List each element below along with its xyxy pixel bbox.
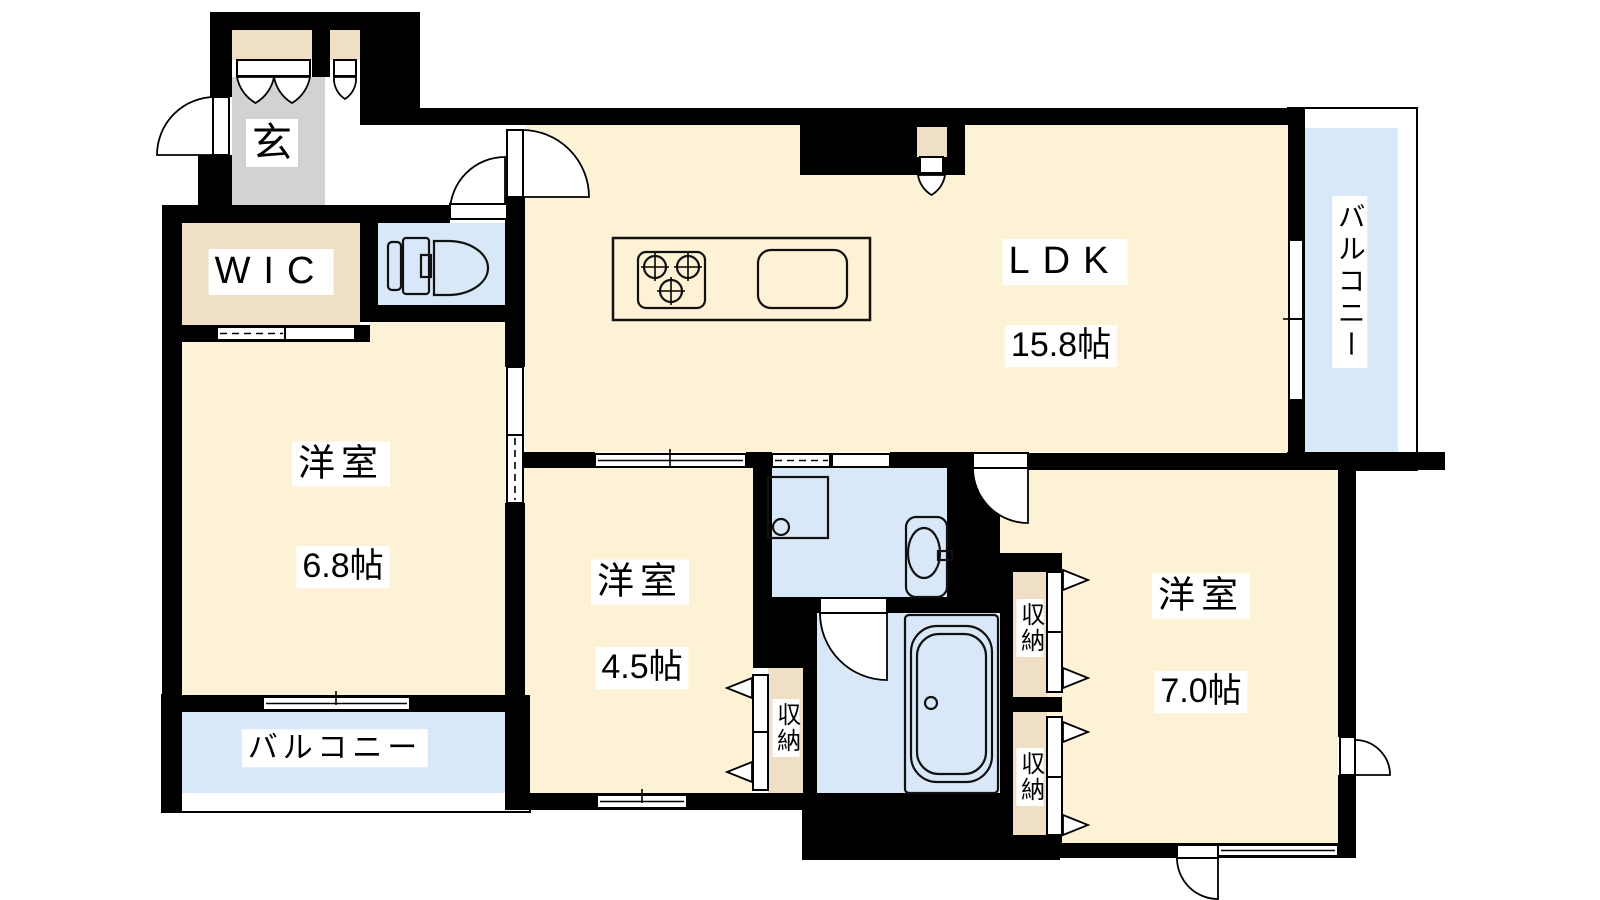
bedroom-right-label: 洋室 bbox=[1152, 574, 1250, 619]
floorplan-page: 玄 WIC LDK 15.8帖 洋室 6.8帖 洋室 4.5帖 洋室 7.0帖 … bbox=[0, 0, 1600, 900]
balcony-right-label: バルコニー bbox=[1332, 196, 1367, 368]
toilet-floor bbox=[378, 223, 505, 305]
balcony-bottom-label: バルコニー bbox=[242, 729, 428, 767]
bedroom-left-floor-notch bbox=[370, 322, 505, 344]
bedroom-left-sliding-door bbox=[507, 367, 523, 503]
bedroom-right-window bbox=[1218, 845, 1338, 856]
kitchen-counter-icon bbox=[613, 238, 870, 320]
bedroom-middle-size-label: 4.5帖 bbox=[595, 647, 688, 689]
bedroom-right-size-label: 7.0帖 bbox=[1154, 671, 1247, 713]
storage-right-lower-label: 収納 bbox=[1016, 748, 1043, 806]
bedroom-right-side-door bbox=[1340, 737, 1390, 775]
washroom-sliding-door bbox=[772, 454, 890, 467]
bedroom-left-floor bbox=[182, 342, 505, 695]
shoe-closet-2-floor bbox=[330, 30, 360, 60]
wic-label: WIC bbox=[209, 249, 334, 295]
floorplan-drawing bbox=[0, 0, 1600, 900]
bedroom-left-size-label: 6.8帖 bbox=[296, 546, 389, 588]
ldk-label: LDK bbox=[1003, 239, 1128, 285]
storage-right-upper-label: 収納 bbox=[1016, 599, 1043, 657]
pipe-closet-floor bbox=[917, 127, 947, 157]
genkan-label: 玄 bbox=[246, 119, 298, 167]
bedroom-middle-floor bbox=[522, 468, 753, 793]
storage-middle-label: 収納 bbox=[772, 699, 799, 757]
shoe-closet-1-floor bbox=[232, 30, 312, 60]
entry-door bbox=[157, 97, 229, 155]
bedroom-left-label: 洋室 bbox=[292, 442, 390, 487]
ldk-size-label: 15.8帖 bbox=[1005, 325, 1117, 367]
wic-sliding-door bbox=[217, 327, 355, 340]
bedroom-right-bottom-door bbox=[1177, 845, 1218, 899]
toilet-door bbox=[450, 157, 507, 219]
bedroom-middle-label: 洋室 bbox=[591, 560, 689, 605]
shoe-closet-2-door bbox=[334, 60, 356, 99]
